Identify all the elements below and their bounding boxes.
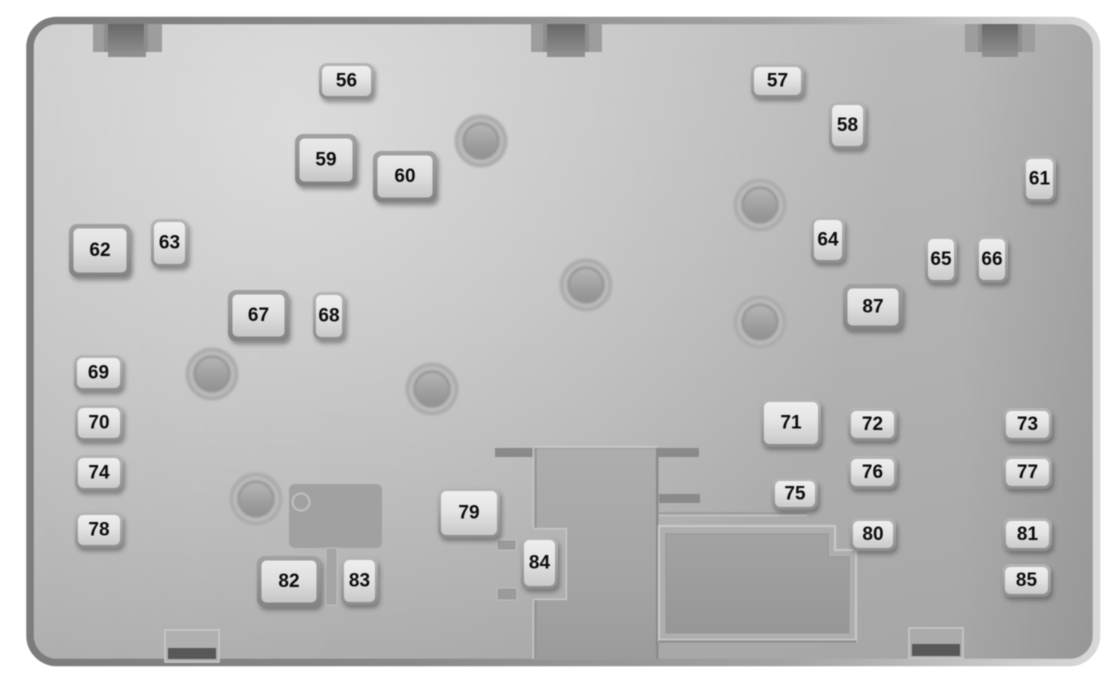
svg-text:69: 69 — [88, 363, 109, 384]
svg-text:62: 62 — [89, 240, 110, 261]
svg-text:73: 73 — [1017, 414, 1038, 435]
svg-text:64: 64 — [817, 230, 839, 251]
svg-text:77: 77 — [1017, 462, 1038, 483]
svg-text:83: 83 — [349, 571, 370, 592]
svg-text:67: 67 — [248, 305, 269, 326]
svg-text:76: 76 — [862, 462, 883, 483]
svg-text:56: 56 — [336, 71, 357, 92]
svg-text:72: 72 — [862, 414, 883, 435]
svg-text:58: 58 — [837, 115, 858, 136]
svg-text:57: 57 — [767, 71, 788, 92]
svg-text:70: 70 — [88, 413, 109, 434]
svg-text:74: 74 — [88, 463, 110, 484]
svg-text:65: 65 — [930, 249, 952, 270]
svg-text:85: 85 — [1016, 570, 1038, 591]
svg-text:60: 60 — [394, 166, 415, 187]
svg-text:66: 66 — [981, 249, 1002, 270]
svg-text:68: 68 — [318, 306, 339, 327]
svg-text:59: 59 — [315, 150, 336, 171]
svg-text:82: 82 — [278, 571, 299, 592]
svg-text:63: 63 — [159, 233, 180, 254]
svg-text:80: 80 — [862, 524, 883, 545]
svg-text:75: 75 — [784, 484, 806, 505]
svg-text:81: 81 — [1017, 524, 1039, 545]
svg-text:78: 78 — [88, 520, 109, 541]
svg-text:71: 71 — [780, 413, 802, 434]
svg-text:61: 61 — [1029, 169, 1051, 190]
svg-text:79: 79 — [458, 503, 479, 524]
svg-text:87: 87 — [862, 297, 883, 318]
svg-text:84: 84 — [529, 553, 551, 574]
